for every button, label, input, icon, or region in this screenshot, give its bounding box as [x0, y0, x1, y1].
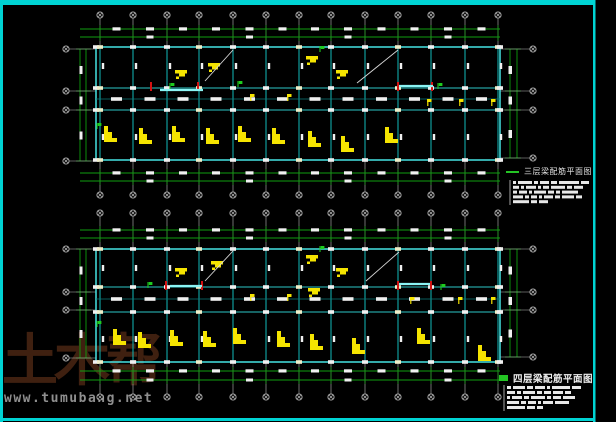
plan2-title: 四层梁配筋平面图 [499, 371, 593, 385]
cad-viewport: 土木帮 www.tumubang.net 三层梁配筋平面图 四层梁配筋平面图 [0, 0, 616, 422]
plan1-title-underline [506, 171, 519, 173]
plan1-title-text: 三层梁配筋平面图 [524, 166, 592, 177]
plan2-title-text: 四层梁配筋平面图 [513, 371, 593, 385]
notes-block [504, 385, 581, 411]
cad-drawing [0, 0, 616, 422]
plan1-title: 三层梁配筋平面图 [506, 166, 592, 177]
rebar-glyphs [104, 56, 496, 152]
notes-block [510, 180, 589, 205]
plan2-title-marker [499, 375, 508, 381]
